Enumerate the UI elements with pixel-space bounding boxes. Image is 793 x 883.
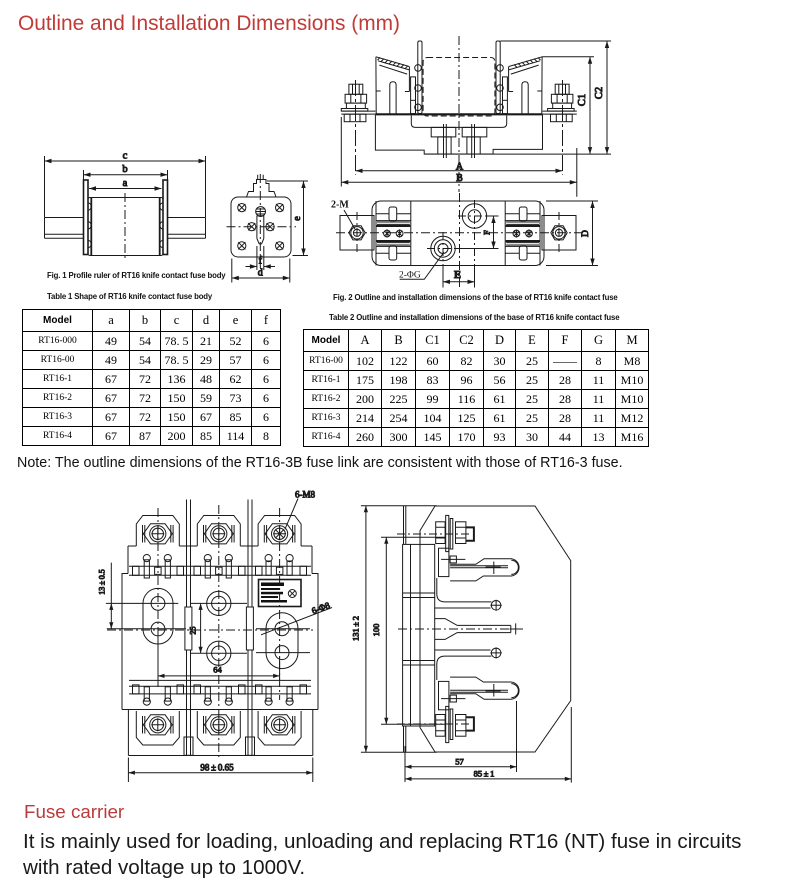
svg-text:b: b <box>122 164 127 175</box>
svg-text:64: 64 <box>213 665 222 675</box>
svg-text:6-Φ8: 6-Φ8 <box>310 600 331 616</box>
svg-text:6-M8: 6-M8 <box>295 490 315 500</box>
svg-text:25: 25 <box>189 627 198 635</box>
svg-text:2-M: 2-M <box>331 200 349 211</box>
svg-text:F: F <box>482 230 492 235</box>
svg-text:85 ± 1: 85 ± 1 <box>474 768 495 778</box>
svg-text:57: 57 <box>455 757 464 767</box>
svg-text:131 ± 2: 131 ± 2 <box>351 616 361 641</box>
svg-text:D: D <box>581 230 591 237</box>
svg-text:c: c <box>123 151 128 162</box>
svg-text:d: d <box>258 268 263 279</box>
svg-text:e: e <box>292 216 303 221</box>
svg-text:A: A <box>456 161 464 172</box>
svg-text:a: a <box>123 178 128 189</box>
svg-text:100: 100 <box>371 624 381 637</box>
svg-text:B: B <box>456 173 463 184</box>
svg-text:C1: C1 <box>577 94 588 106</box>
svg-text:C2: C2 <box>594 87 605 99</box>
svg-text:13 ± 0.5: 13 ± 0.5 <box>98 569 107 595</box>
svg-text:E: E <box>454 270 461 281</box>
svg-text:98 ± 0.65: 98 ± 0.65 <box>200 763 234 773</box>
